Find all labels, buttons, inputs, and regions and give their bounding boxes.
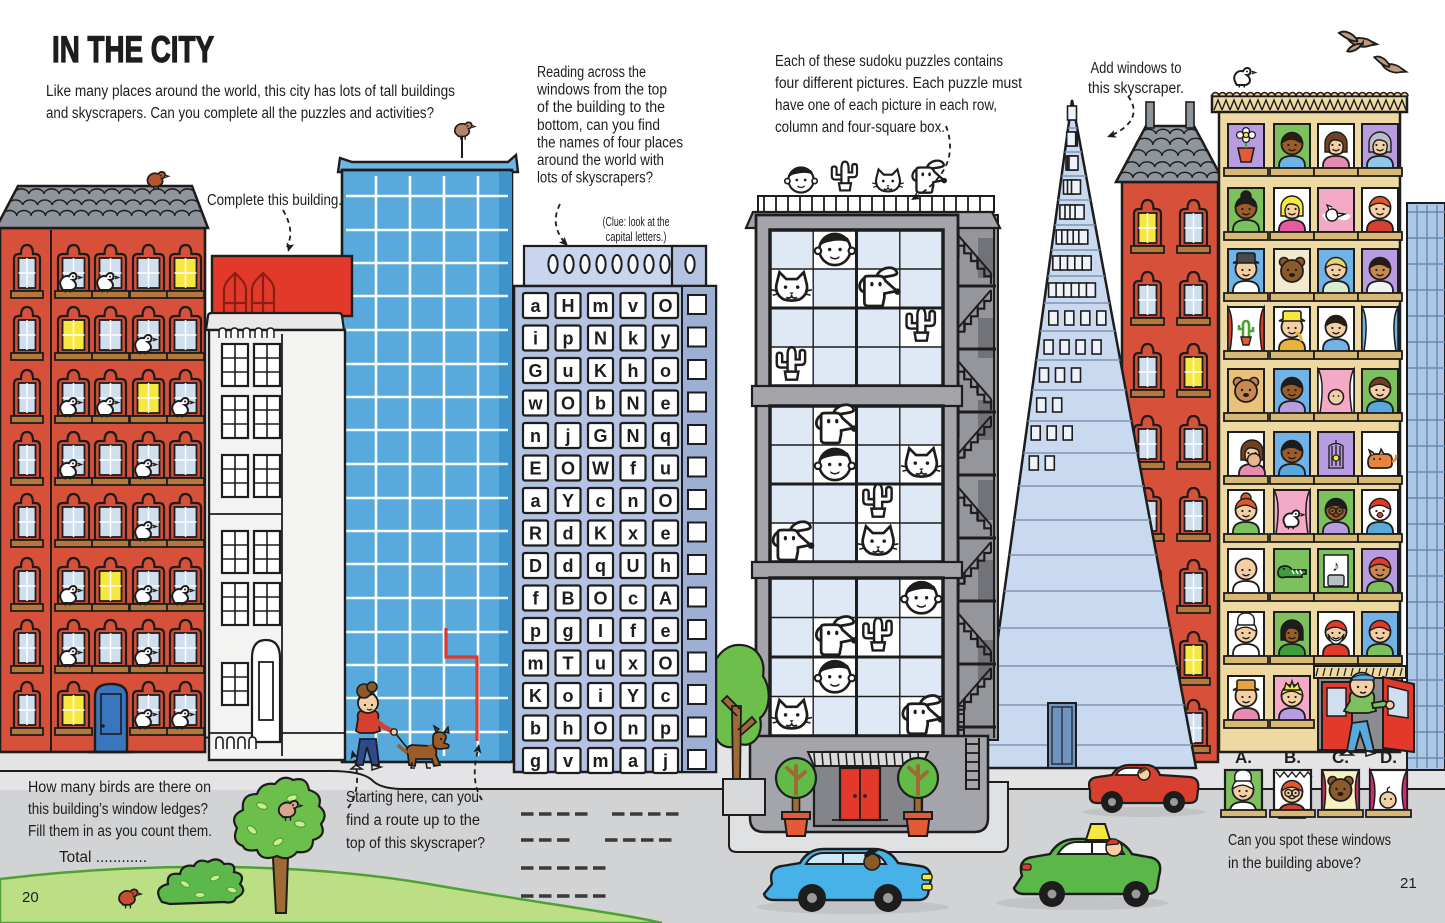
svg-text:e: e bbox=[660, 524, 670, 544]
svg-text:v: v bbox=[628, 296, 638, 316]
svg-text:B: B bbox=[562, 589, 575, 609]
svg-text:bottom, can you find: bottom, can you find bbox=[537, 117, 660, 134]
svg-text:20: 20 bbox=[22, 889, 39, 906]
svg-text:d: d bbox=[563, 556, 574, 576]
svg-text:n: n bbox=[530, 426, 541, 446]
svg-text:m: m bbox=[592, 751, 608, 771]
svg-text:column and four-square box.: column and four-square box. bbox=[775, 119, 945, 136]
svg-text:n: n bbox=[628, 491, 639, 511]
svg-text:w: w bbox=[527, 394, 543, 414]
svg-text:find a route up to the: find a route up to the bbox=[346, 812, 480, 829]
svg-text:Complete this building.: Complete this building. bbox=[207, 192, 342, 209]
svg-text:c: c bbox=[628, 589, 638, 609]
svg-text:♪: ♪ bbox=[1332, 558, 1340, 575]
svg-text:around the world with: around the world with bbox=[537, 152, 664, 169]
svg-text:Starting here, can you: Starting here, can you bbox=[346, 789, 479, 806]
svg-text:B.: B. bbox=[1284, 748, 1301, 767]
svg-text:b: b bbox=[530, 719, 541, 739]
svg-text:O: O bbox=[658, 296, 672, 316]
svg-text:Y: Y bbox=[562, 491, 574, 511]
svg-text:g: g bbox=[563, 621, 574, 641]
svg-text:x: x bbox=[628, 524, 638, 544]
svg-text:i: i bbox=[533, 329, 538, 349]
svg-text:O: O bbox=[561, 394, 575, 414]
svg-text:A: A bbox=[659, 589, 672, 609]
svg-text:Can you spot these windows: Can you spot these windows bbox=[1228, 832, 1391, 849]
svg-text:C.: C. bbox=[1332, 748, 1349, 767]
svg-text:v: v bbox=[563, 751, 573, 771]
svg-text:h: h bbox=[628, 361, 639, 381]
svg-text:R: R bbox=[529, 524, 542, 544]
svg-text:N: N bbox=[594, 329, 607, 349]
svg-text:N: N bbox=[627, 426, 640, 446]
svg-text:j: j bbox=[564, 426, 570, 446]
svg-text:E: E bbox=[529, 459, 541, 479]
svg-text:21: 21 bbox=[1400, 875, 1417, 892]
svg-text:have one of each picture in ea: have one of each picture in each row, bbox=[775, 97, 997, 114]
svg-text:of the building to the: of the building to the bbox=[537, 99, 665, 116]
svg-text:in the building above?: in the building above? bbox=[1228, 855, 1361, 872]
svg-text:top of this skyscraper?: top of this skyscraper? bbox=[346, 835, 485, 852]
svg-text:m: m bbox=[527, 654, 543, 674]
svg-text:d: d bbox=[563, 524, 574, 544]
svg-text:the names of four places: the names of four places bbox=[537, 134, 683, 151]
svg-text:O: O bbox=[593, 589, 607, 609]
svg-text:N: N bbox=[627, 394, 640, 414]
svg-text:Each of these sudoku puzzles c: Each of these sudoku puzzles contains bbox=[775, 53, 1003, 70]
svg-text:How many birds are there on: How many birds are there on bbox=[28, 779, 211, 796]
svg-text:O: O bbox=[593, 719, 607, 739]
svg-text:U: U bbox=[627, 556, 640, 576]
svg-text:c: c bbox=[660, 686, 670, 706]
svg-text:u: u bbox=[595, 654, 606, 674]
svg-text:capital letters.): capital letters.) bbox=[606, 230, 667, 244]
svg-text:lots of skyscrapers?: lots of skyscrapers? bbox=[537, 170, 653, 187]
svg-text:Like many places around the wo: Like many places around the world, this … bbox=[46, 83, 455, 100]
svg-text:h: h bbox=[563, 719, 574, 739]
svg-text:D.: D. bbox=[1380, 748, 1397, 767]
svg-text:p: p bbox=[563, 329, 574, 349]
svg-text:b: b bbox=[595, 394, 606, 414]
svg-text:four different pictures. Each: four different pictures. Each puzzle mus… bbox=[775, 75, 1023, 92]
svg-text:a: a bbox=[530, 491, 541, 511]
svg-text:a: a bbox=[530, 296, 541, 316]
svg-text:i: i bbox=[598, 686, 603, 706]
svg-text:(Clue: look at the: (Clue: look at the bbox=[603, 215, 670, 229]
svg-text:Y: Y bbox=[627, 686, 639, 706]
svg-text:I: I bbox=[598, 621, 603, 641]
svg-text:H: H bbox=[562, 296, 575, 316]
svg-text:O: O bbox=[561, 459, 575, 479]
svg-text:O: O bbox=[658, 654, 672, 674]
svg-text:p: p bbox=[660, 719, 671, 739]
svg-text:D: D bbox=[529, 556, 542, 576]
svg-text:x: x bbox=[628, 654, 638, 674]
svg-text:Fill them in as you count them: Fill them in as you count them. bbox=[28, 823, 212, 840]
svg-text:O: O bbox=[658, 491, 672, 511]
svg-text:e: e bbox=[660, 394, 670, 414]
svg-text:windows from the top: windows from the top bbox=[536, 82, 667, 99]
svg-text:IN THE CITY: IN THE CITY bbox=[52, 29, 214, 70]
svg-text:p: p bbox=[530, 621, 541, 641]
svg-text:T: T bbox=[563, 654, 574, 674]
svg-text:u: u bbox=[660, 459, 671, 479]
svg-text:K: K bbox=[594, 524, 607, 544]
svg-text:h: h bbox=[660, 556, 671, 576]
svg-text:this skyscraper.: this skyscraper. bbox=[1088, 80, 1184, 97]
svg-text:Total ............: Total ............ bbox=[59, 849, 147, 866]
svg-text:e: e bbox=[660, 621, 670, 641]
svg-text:G: G bbox=[528, 361, 542, 381]
svg-text:n: n bbox=[628, 719, 639, 739]
svg-text:g: g bbox=[530, 751, 541, 771]
svg-text:q: q bbox=[660, 426, 671, 446]
svg-text:q: q bbox=[595, 556, 606, 576]
svg-text:k: k bbox=[628, 329, 639, 349]
svg-text:u: u bbox=[563, 361, 574, 381]
svg-text:y: y bbox=[660, 329, 670, 349]
svg-text:j: j bbox=[662, 751, 668, 771]
svg-text:K: K bbox=[529, 686, 542, 706]
svg-text:K: K bbox=[594, 361, 607, 381]
svg-text:Reading across the: Reading across the bbox=[537, 64, 646, 81]
svg-text:o: o bbox=[563, 686, 574, 706]
svg-text:f: f bbox=[630, 621, 637, 641]
svg-text:G: G bbox=[593, 426, 607, 446]
svg-text:o: o bbox=[660, 361, 671, 381]
svg-text:A.: A. bbox=[1235, 748, 1252, 767]
svg-text:c: c bbox=[595, 491, 605, 511]
svg-text:and skyscrapers. Can you compl: and skyscrapers. Can you complete all th… bbox=[46, 105, 434, 122]
svg-text:m: m bbox=[592, 296, 608, 316]
svg-text:a: a bbox=[628, 751, 639, 771]
svg-text:Add windows to: Add windows to bbox=[1091, 60, 1182, 77]
svg-text:this building’s window ledges?: this building’s window ledges? bbox=[28, 801, 208, 818]
svg-text:f: f bbox=[630, 459, 637, 479]
svg-text:f: f bbox=[533, 589, 540, 609]
svg-text:W: W bbox=[592, 459, 609, 479]
